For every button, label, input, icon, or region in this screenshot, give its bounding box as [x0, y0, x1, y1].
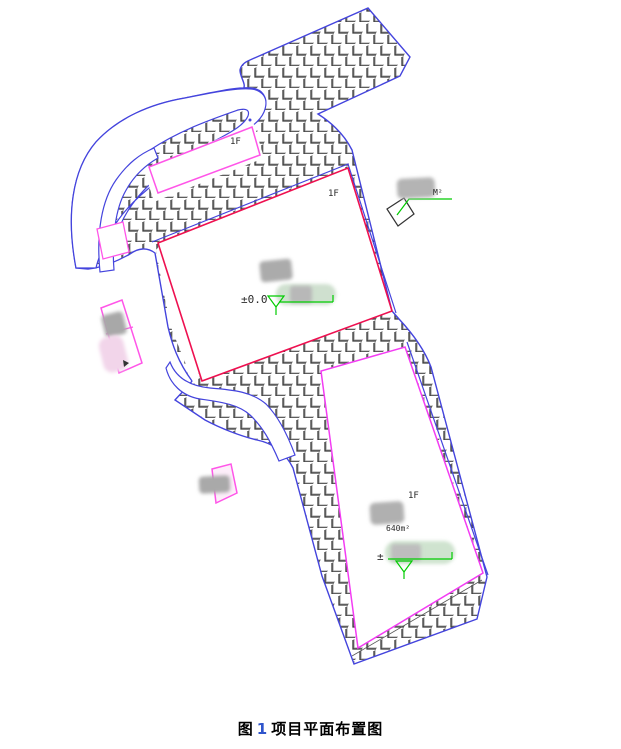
figure-caption-number: 1	[254, 720, 271, 738]
redaction-blur	[259, 258, 293, 282]
upper-building-elevation-label: ±0.0	[241, 293, 268, 306]
upper-building-floor-label: 1F	[328, 189, 339, 199]
redaction-blur	[290, 286, 312, 303]
site-plan-figure: { "figure": { "caption": { "prefix": "图"…	[0, 0, 621, 749]
figure-caption: 图1项目平面布置图	[0, 718, 621, 739]
figure-caption-prefix: 图	[238, 720, 254, 738]
site-plan-drawing: 1F 1F ±0.0 1F 640m² ± M²	[0, 0, 621, 715]
small-annotation-square	[97, 222, 129, 259]
lower-building-area-label: 640m²	[386, 524, 410, 533]
figure-caption-title: 项目平面布置图	[271, 720, 383, 738]
redaction-blur	[199, 475, 231, 494]
survey-dot	[249, 119, 252, 122]
lower-building-elevation-label: ±	[377, 550, 384, 563]
north-parcel-floor-label: 1F	[230, 137, 241, 147]
annotation-area-unit-label: M²	[433, 188, 443, 197]
lower-building-floor-label: 1F	[408, 491, 419, 501]
redaction-blur	[397, 177, 436, 199]
redaction-blur	[369, 501, 404, 525]
survey-square-icon	[387, 198, 414, 226]
